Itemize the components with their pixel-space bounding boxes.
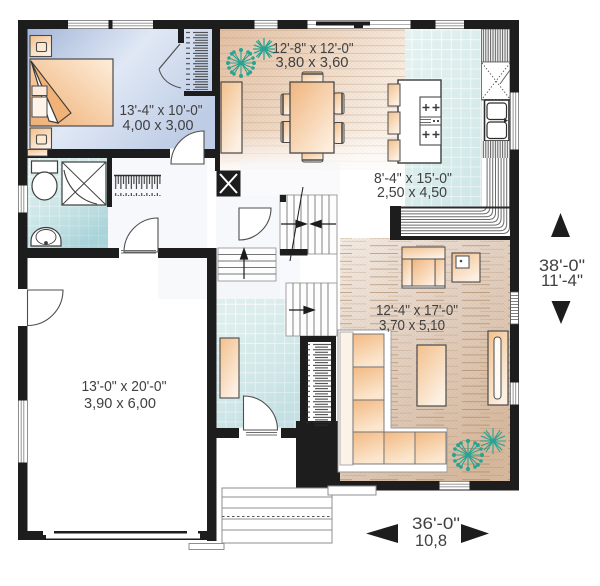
svg-text:2,50 x 4,50: 2,50 x 4,50 xyxy=(377,184,447,201)
svg-text:11'-4": 11'-4" xyxy=(541,272,583,290)
svg-text:36'-0": 36'-0" xyxy=(412,515,460,533)
svg-text:3,90 x 6,00: 3,90 x 6,00 xyxy=(84,395,156,412)
svg-text:3,80 x 3,60: 3,80 x 3,60 xyxy=(276,54,349,71)
svg-text:13'-0" x 20'-0": 13'-0" x 20'-0" xyxy=(82,378,167,395)
svg-text:3,70 x 5,10: 3,70 x 5,10 xyxy=(379,317,445,334)
svg-text:4,00 x 3,00: 4,00 x 3,00 xyxy=(123,117,194,134)
svg-text:10,8: 10,8 xyxy=(415,532,447,550)
